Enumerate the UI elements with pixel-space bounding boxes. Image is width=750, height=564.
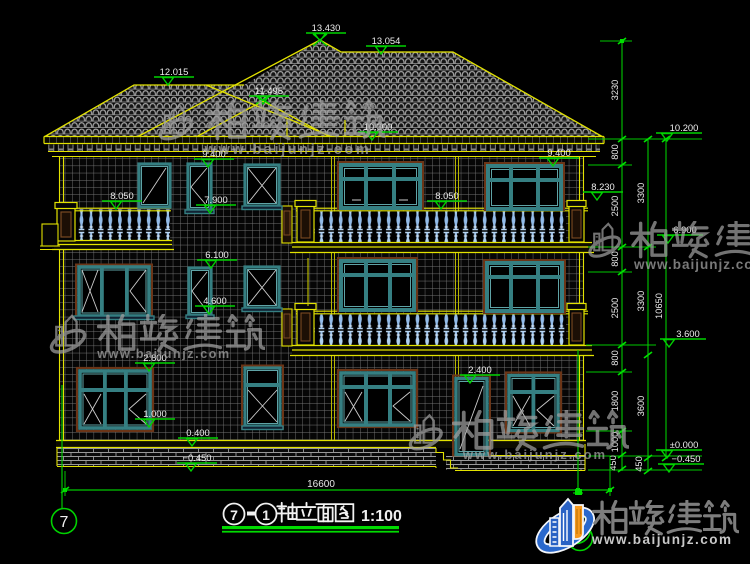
svg-text:13.430: 13.430 — [312, 22, 341, 33]
svg-text:0.400: 0.400 — [186, 427, 209, 438]
svg-text:10.200: 10.200 — [670, 122, 699, 133]
svg-text:3300: 3300 — [636, 291, 646, 312]
svg-text:2.400: 2.400 — [468, 364, 491, 375]
svg-text:16600: 16600 — [307, 479, 335, 490]
svg-text:450: 450 — [634, 456, 644, 472]
svg-text:1: 1 — [262, 507, 270, 523]
svg-text:7.900: 7.900 — [204, 194, 227, 205]
svg-text:1800: 1800 — [610, 391, 620, 412]
svg-text:11.495: 11.495 — [255, 85, 283, 96]
svg-text:800: 800 — [610, 350, 620, 366]
svg-text:3600: 3600 — [636, 396, 646, 417]
svg-text:3300: 3300 — [636, 183, 646, 204]
svg-text:12.015: 12.015 — [160, 66, 189, 77]
svg-text:www.baijunjz.com: www.baijunjz.com — [633, 257, 750, 272]
svg-text:www.baijunjz.com: www.baijunjz.com — [96, 347, 230, 361]
svg-text:9.400: 9.400 — [547, 147, 570, 158]
svg-text:−0.450: −0.450 — [183, 452, 212, 463]
svg-text:8.230: 8.230 — [591, 181, 614, 192]
svg-text:10650: 10650 — [654, 293, 664, 319]
svg-text:www.baijunjz.com: www.baijunjz.com — [591, 532, 733, 547]
svg-text:3.600: 3.600 — [676, 328, 699, 339]
svg-text:4.600: 4.600 — [203, 295, 226, 306]
svg-text:3230: 3230 — [610, 80, 620, 101]
svg-text:13.054: 13.054 — [372, 35, 401, 46]
svg-text:www.baijunjz.com: www.baijunjz.com — [462, 447, 607, 462]
svg-text:1:100: 1:100 — [361, 508, 402, 525]
svg-text:800: 800 — [610, 144, 620, 160]
svg-text:2500: 2500 — [610, 196, 620, 217]
svg-text:2500: 2500 — [610, 298, 620, 319]
svg-text:1.000: 1.000 — [143, 408, 166, 419]
svg-text:7: 7 — [60, 514, 69, 531]
svg-text:±0.000: ±0.000 — [670, 439, 699, 450]
svg-text:7: 7 — [230, 507, 238, 523]
svg-text:www.baijunjz.com: www.baijunjz.com — [204, 142, 372, 158]
svg-text:−0.450: −0.450 — [672, 453, 701, 464]
svg-text:8.050: 8.050 — [435, 190, 458, 201]
svg-text:8.050: 8.050 — [110, 190, 133, 201]
svg-text:6.100: 6.100 — [205, 249, 228, 260]
svg-text:800: 800 — [610, 251, 620, 267]
